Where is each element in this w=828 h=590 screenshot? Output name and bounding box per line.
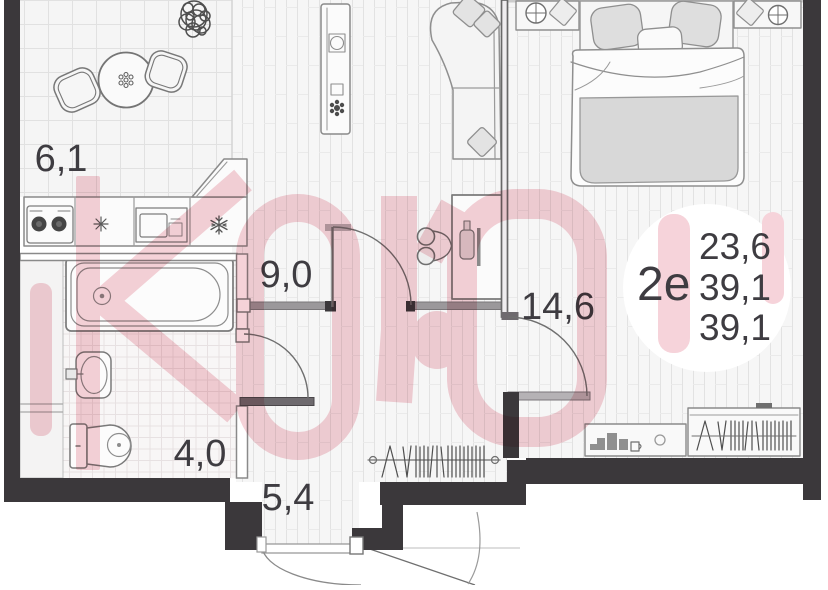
svg-text:9,0: 9,0	[260, 254, 313, 296]
svg-text:5,4: 5,4	[262, 477, 315, 519]
svg-text:6,1: 6,1	[35, 138, 88, 180]
svg-text:4,0: 4,0	[174, 433, 227, 475]
svg-text:23,6: 23,6	[699, 226, 771, 267]
svg-text:39,1: 39,1	[699, 267, 771, 308]
svg-text:39,1: 39,1	[699, 307, 771, 348]
svg-text:2е: 2е	[637, 258, 690, 311]
